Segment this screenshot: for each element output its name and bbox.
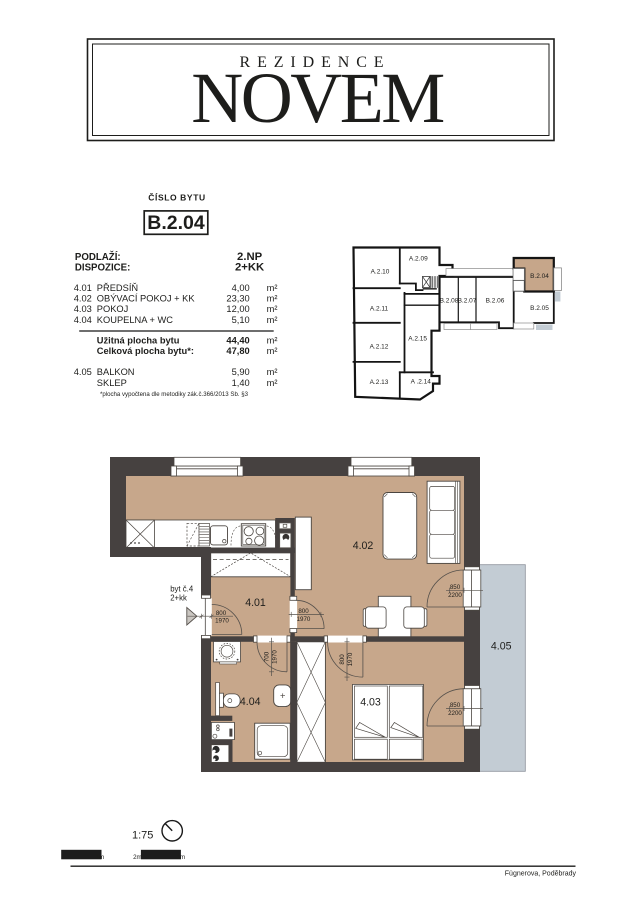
svg-text:Celková plocha bytu*:: Celková plocha bytu*: [97,346,194,356]
svg-text:A.2.10: A.2.10 [371,269,390,276]
svg-text:2m: 2m [133,854,142,861]
svg-text:DISPOZICE:: DISPOZICE: [75,263,130,274]
svg-text:NOVEM: NOVEM [191,58,443,138]
svg-text:800: 800 [216,610,227,617]
svg-text:BALKON: BALKON [97,367,135,377]
svg-text:800: 800 [339,654,346,665]
svg-text:m²: m² [267,335,278,345]
svg-text:4.02: 4.02 [353,540,374,552]
svg-text:4.01: 4.01 [245,597,266,609]
svg-text:KOUPELNA + WC: KOUPELNA + WC [97,315,173,325]
svg-text:A.2.09: A.2.09 [409,256,428,263]
svg-text:1:75: 1:75 [132,829,153,841]
svg-text:B.2.08: B.2.08 [440,298,459,305]
svg-text:1970: 1970 [215,618,229,625]
svg-text:47,80: 47,80 [226,346,249,356]
svg-text:4.01: 4.01 [74,283,92,293]
svg-text:3m: 3m [177,854,186,861]
svg-text:2+KK: 2+KK [235,262,265,274]
svg-text:4.05: 4.05 [491,641,512,653]
svg-text:A .2.14: A .2.14 [411,378,432,385]
svg-text:1m: 1m [96,854,105,861]
svg-text:m²: m² [267,367,278,377]
svg-text:OBÝVACÍ POKOJ + KK: OBÝVACÍ POKOJ + KK [97,294,196,304]
svg-text:m²: m² [267,346,278,356]
svg-text:m²: m² [267,294,278,304]
svg-text:m²: m² [267,283,278,293]
svg-text:B.2.05: B.2.05 [530,305,549,312]
svg-text:PŘEDSÍŇ: PŘEDSÍŇ [97,283,138,293]
svg-text:2200: 2200 [448,710,462,717]
svg-text:850: 850 [450,584,461,591]
svg-text:4.05: 4.05 [74,367,92,377]
svg-text:23,30: 23,30 [226,294,249,304]
svg-text:44,40: 44,40 [226,335,249,345]
svg-text:4.03: 4.03 [360,697,381,709]
svg-text:1970: 1970 [347,652,354,666]
svg-text:B.2.04: B.2.04 [530,273,549,280]
svg-text:4,00: 4,00 [232,283,250,293]
svg-text:1970: 1970 [297,616,311,623]
svg-text:byt č.4: byt č.4 [170,585,194,594]
svg-text:POKOJ: POKOJ [97,304,129,314]
svg-text:*plocha vypočtena dle metodiky: *plocha vypočtena dle metodiky zák.č.366… [100,391,249,398]
svg-text:PODLAŽÍ:: PODLAŽÍ: [75,251,121,263]
svg-text:2200: 2200 [448,592,462,599]
svg-text:B.2.06: B.2.06 [486,298,505,305]
svg-text:1,40: 1,40 [232,378,250,388]
svg-text:ČÍSLO BYTU: ČÍSLO BYTU [148,192,205,203]
svg-text:A.2.11: A.2.11 [370,305,389,312]
svg-text:Fügnerova, Poděbrady: Fügnerova, Poděbrady [505,870,577,877]
svg-text:A.2.13: A.2.13 [370,379,389,386]
svg-text:B.2.07: B.2.07 [458,298,477,305]
svg-text:5,10: 5,10 [232,315,250,325]
svg-text:4.04: 4.04 [240,696,261,708]
svg-text:4.02: 4.02 [74,294,92,304]
svg-text:Užitná plocha bytu: Užitná plocha bytu [97,335,180,345]
svg-text:700: 700 [264,651,271,662]
svg-text:4.04: 4.04 [74,315,92,325]
svg-text:A.2.15: A.2.15 [408,336,427,343]
svg-text:800: 800 [298,608,309,615]
svg-text:m²: m² [267,378,278,388]
svg-text:B.2.04: B.2.04 [147,212,205,234]
svg-text:2+kk: 2+kk [170,593,187,602]
svg-text:A.2.12: A.2.12 [370,344,389,351]
svg-text:850: 850 [450,702,461,709]
svg-text:4.03: 4.03 [74,304,92,314]
svg-text:m²: m² [267,304,278,314]
svg-text:SKLEP: SKLEP [97,378,127,388]
svg-text:12,00: 12,00 [226,304,249,314]
svg-text:5,90: 5,90 [232,367,250,377]
svg-text:m²: m² [267,315,278,325]
svg-text:1970: 1970 [272,650,279,664]
